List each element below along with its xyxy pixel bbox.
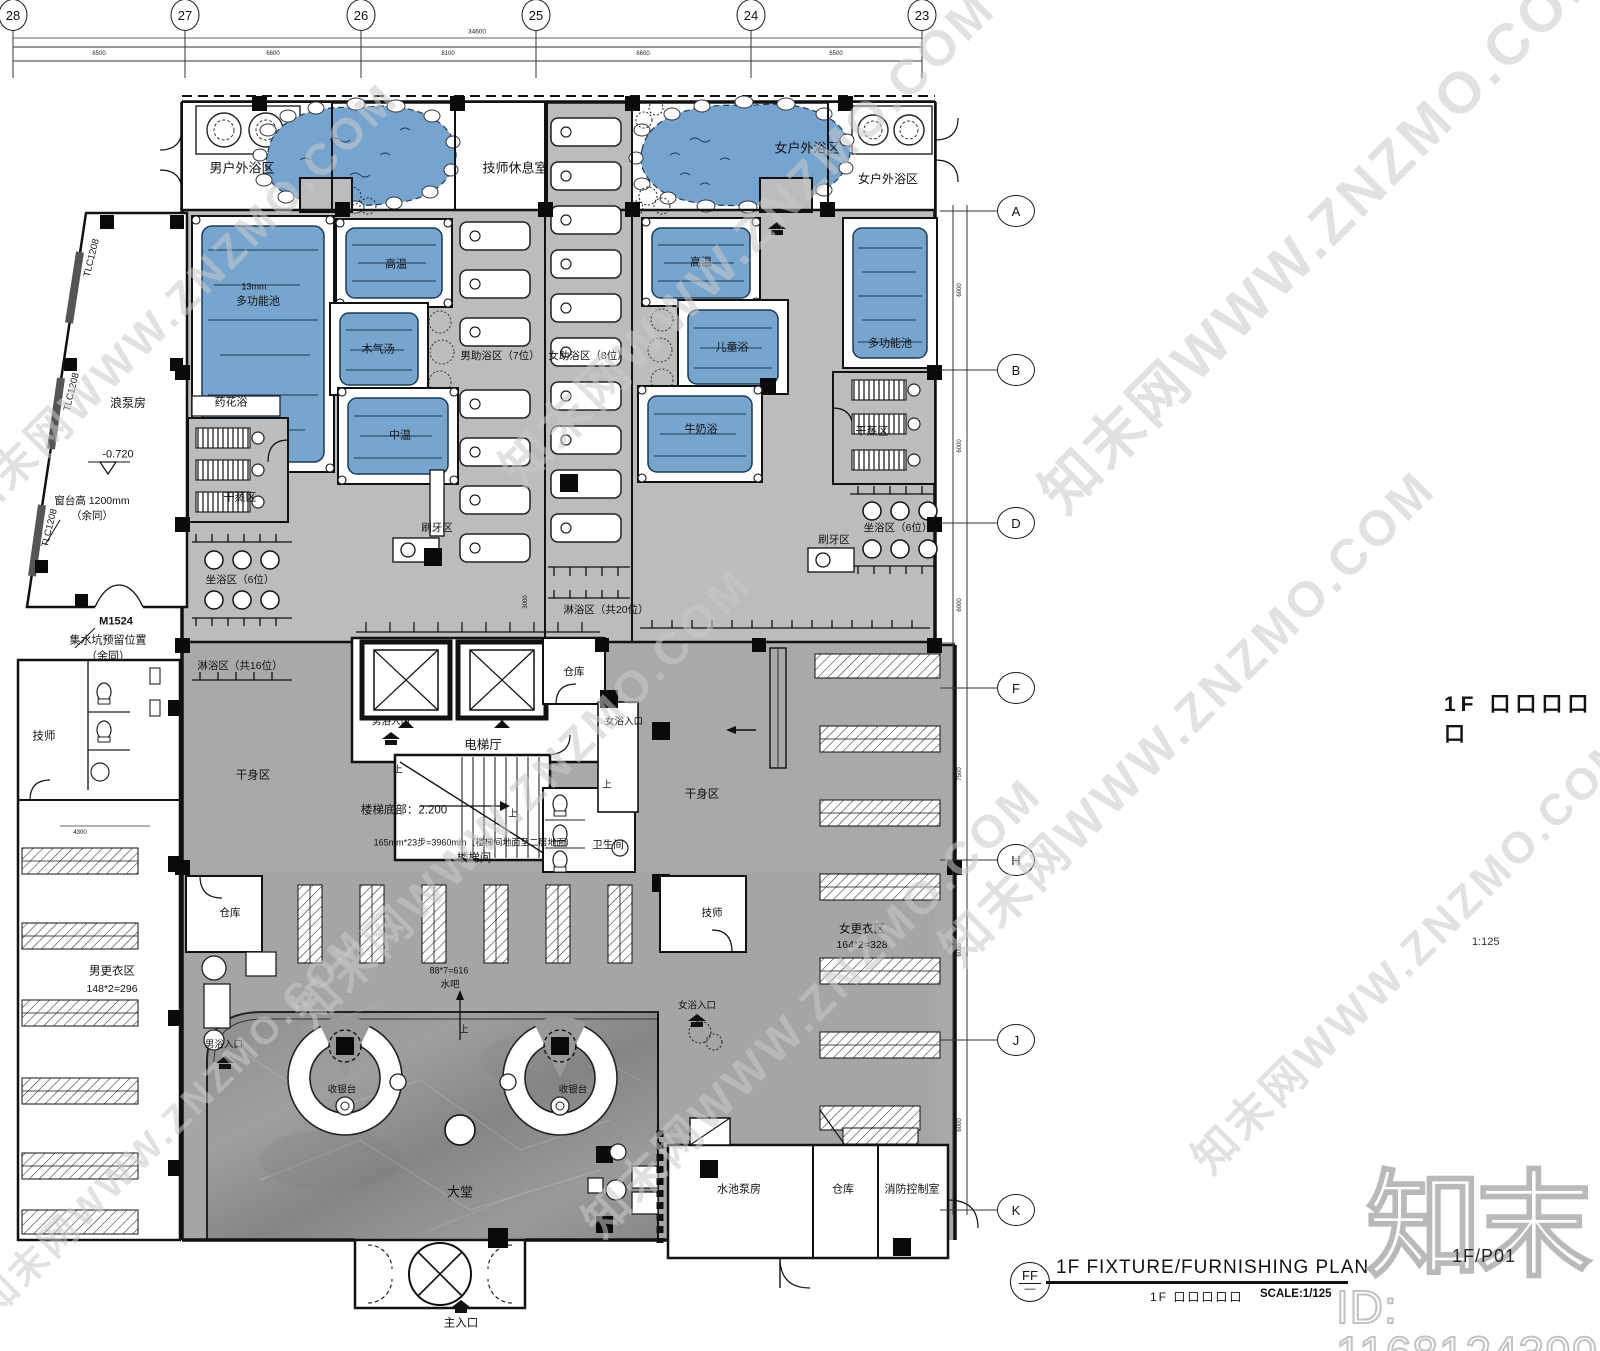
zone-dry-steam-left-label: 干蒸区	[224, 493, 257, 504]
zone-shower16-label: 淋浴区（共16位）	[197, 661, 282, 672]
room-storage-br-label: 仓库	[832, 1185, 854, 1196]
detail-ref-top: FF	[1019, 1269, 1041, 1284]
dim-right-bay-2: 6000	[957, 598, 963, 611]
dim-4300: 4300	[73, 830, 86, 836]
up-mark-2: 上	[508, 809, 518, 819]
room-storage-mid-label: 仓库	[564, 667, 585, 678]
hall-elevator-label: 电梯厅	[464, 739, 502, 752]
up-mark-1: 上	[393, 765, 403, 775]
watermark-id: ID: 1168124399	[1336, 1284, 1600, 1351]
pool-high-left-label: 高温	[385, 260, 407, 271]
pool-children-label: 儿童浴	[716, 343, 749, 354]
dim-top-bay-0: 6500	[92, 51, 105, 57]
zone-men-locker-calc: 148*2=296	[86, 984, 137, 995]
detail-ref-bottom: —	[1025, 1284, 1036, 1295]
entry-women-hall-label: 女浴入口	[678, 1001, 716, 1011]
room-tech-left-label: 技师	[33, 731, 56, 743]
dim-right-bay-3: 7500	[957, 767, 963, 780]
stair-bottom-note: 楼梯底部：2.200	[361, 805, 447, 817]
bar-calc-note: 88*7=616	[430, 967, 469, 976]
title-underline	[1046, 1281, 1348, 1284]
grid-bubble-A: A	[997, 195, 1035, 227]
room-tech-right-label: 技师	[702, 908, 723, 919]
sheet-scale: SCALE:1/125	[1260, 1288, 1332, 1300]
zone-women-outdoor-label: 女户外浴区	[858, 173, 918, 185]
up-mark-3: 上	[602, 780, 612, 790]
dim-top-bay-4: 6500	[829, 51, 842, 57]
grid-bubble-J: J	[997, 1024, 1035, 1056]
stair-calc-note: 165mm*23步=3960mm（楼梯间地面至二层地面）	[374, 839, 575, 848]
door-m1524-label: M1524	[99, 617, 133, 628]
zone-dry-body-right-label: 干身区	[685, 789, 720, 801]
floor-plan-sheet: 男户外浴区技师休息室女户外浴区女户外浴区13mm多功能池高温木气汤中温高温儿童浴…	[0, 0, 1600, 1351]
zone-men-assist-label: 男助浴区（7位）	[460, 351, 539, 362]
zone-sit-left-label: 坐浴区（6位）	[206, 575, 275, 586]
grid-bubble-24: 24	[737, 0, 766, 31]
dim-top-bay-1: 6600	[266, 51, 279, 57]
bar-label: 水吧	[440, 980, 459, 990]
entry-men-hall-label: 男浴入口	[205, 1040, 243, 1050]
left-lower-block	[18, 660, 180, 1240]
dim-right-bay-4: 6000	[957, 943, 963, 956]
entrance-main-label: 主入口	[444, 1318, 479, 1330]
desk-left-label: 收银台	[328, 1085, 357, 1095]
grid-bubble-F: F	[997, 672, 1035, 704]
room-fire-ctrl-label: 消防控制室	[885, 1185, 940, 1196]
pool-multi-left-label: 多功能池	[236, 297, 280, 308]
dim-right-bay-0: 6000	[957, 283, 963, 296]
grid-bubble-23: 23	[908, 0, 937, 31]
room-wc-label: 卫生间	[592, 840, 624, 851]
zone-dry-body-left-label: 干身区	[236, 770, 271, 782]
sill-note-2: （余同）	[71, 511, 113, 522]
zone-women-locker-calc: 164*2=328	[836, 940, 887, 951]
sheet-subtitle-cn: 1F 口口口口口	[1150, 1288, 1243, 1305]
dim-top-bay-2: 8100	[441, 51, 454, 57]
grid-bubble-27: 27	[171, 0, 200, 31]
grid-bubble-D: D	[997, 507, 1035, 539]
sump-note-1: 集水坑预留位置	[70, 636, 147, 647]
sump-note-2: （余同）	[86, 652, 130, 663]
grid-bubble-B: B	[997, 354, 1035, 386]
zone-women-outdoor-pond-label: 女户外浴区	[774, 142, 839, 155]
zone-women-assist-label: 女助浴区（8位）	[548, 351, 627, 362]
lobby-label: 大堂	[447, 1186, 473, 1199]
grid-bubble-K: K	[997, 1194, 1035, 1226]
grid-bubble-H: H	[997, 844, 1035, 876]
room-flower-bath-label: 药花浴	[215, 398, 248, 409]
zone-shower20-label: 淋浴区（共20位）	[563, 605, 648, 616]
up-mark-4: 上	[459, 1025, 469, 1035]
detail-ref-bubble: FF —	[1010, 1262, 1050, 1302]
pump-room-annex	[27, 213, 187, 648]
pool-milk-label: 牛奶浴	[685, 425, 718, 436]
room-stair-label: 楼梯间	[457, 853, 492, 865]
dim-3000: 3000	[523, 595, 529, 608]
dim-top-bay-3: 6600	[636, 51, 649, 57]
pool-wood-label: 木气汤	[362, 345, 395, 356]
dim-right-bay-5: 6000	[957, 1118, 963, 1131]
dim-total-top: 34600	[468, 29, 486, 36]
zone-brush-right-label: 刷牙区	[818, 535, 850, 546]
sheet-title: 1F FIXTURE/FURNISHING PLAN	[1056, 1257, 1369, 1279]
entry-women-mid-label: 女浴入口	[605, 717, 643, 727]
zone-men-locker-label: 男更衣区	[89, 966, 135, 978]
zone-dry-steam-right-label: 干蒸区	[856, 427, 889, 438]
zone-sit-right-label: 坐浴区（6位）	[864, 523, 933, 534]
main-entrance	[355, 1228, 525, 1313]
entry-men-mid-label: 男浴入口	[372, 717, 410, 727]
room-pump-label: 浪泵房	[110, 397, 146, 409]
zone-brush-center-label: 刷牙区	[421, 523, 453, 534]
grid-bubble-25: 25	[522, 0, 551, 31]
room-tech-rest-label: 技师休息室	[482, 162, 547, 175]
pool-depth-note: 13mm	[241, 283, 266, 292]
dim-right-bay-1: 6000	[957, 439, 963, 452]
room-storage-bl-label: 仓库	[220, 908, 241, 919]
pool-high-right-label: 高温	[690, 258, 712, 269]
floor-plan-drawing	[0, 0, 1600, 1351]
level-note: -0.720	[102, 450, 133, 461]
desk-right-label: 收银台	[559, 1085, 588, 1095]
zone-women-locker-label: 女更衣区	[839, 924, 885, 936]
zone-men-outdoor-label: 男户外浴区	[209, 162, 274, 175]
pool-mid-label: 中温	[389, 431, 411, 442]
grid-bubble-26: 26	[347, 0, 376, 31]
pool-multi-right-label: 多功能池	[868, 339, 912, 350]
sheet-number: 1F/P01	[1452, 1246, 1516, 1267]
mid-scale-note: 1:125	[1472, 936, 1500, 948]
sill-note-1: 窗台高 1200mm	[54, 496, 129, 507]
room-pool-pump-label: 水池泵房	[717, 1185, 761, 1196]
plan-name-cn: 1F 口口口口口	[1444, 688, 1600, 748]
